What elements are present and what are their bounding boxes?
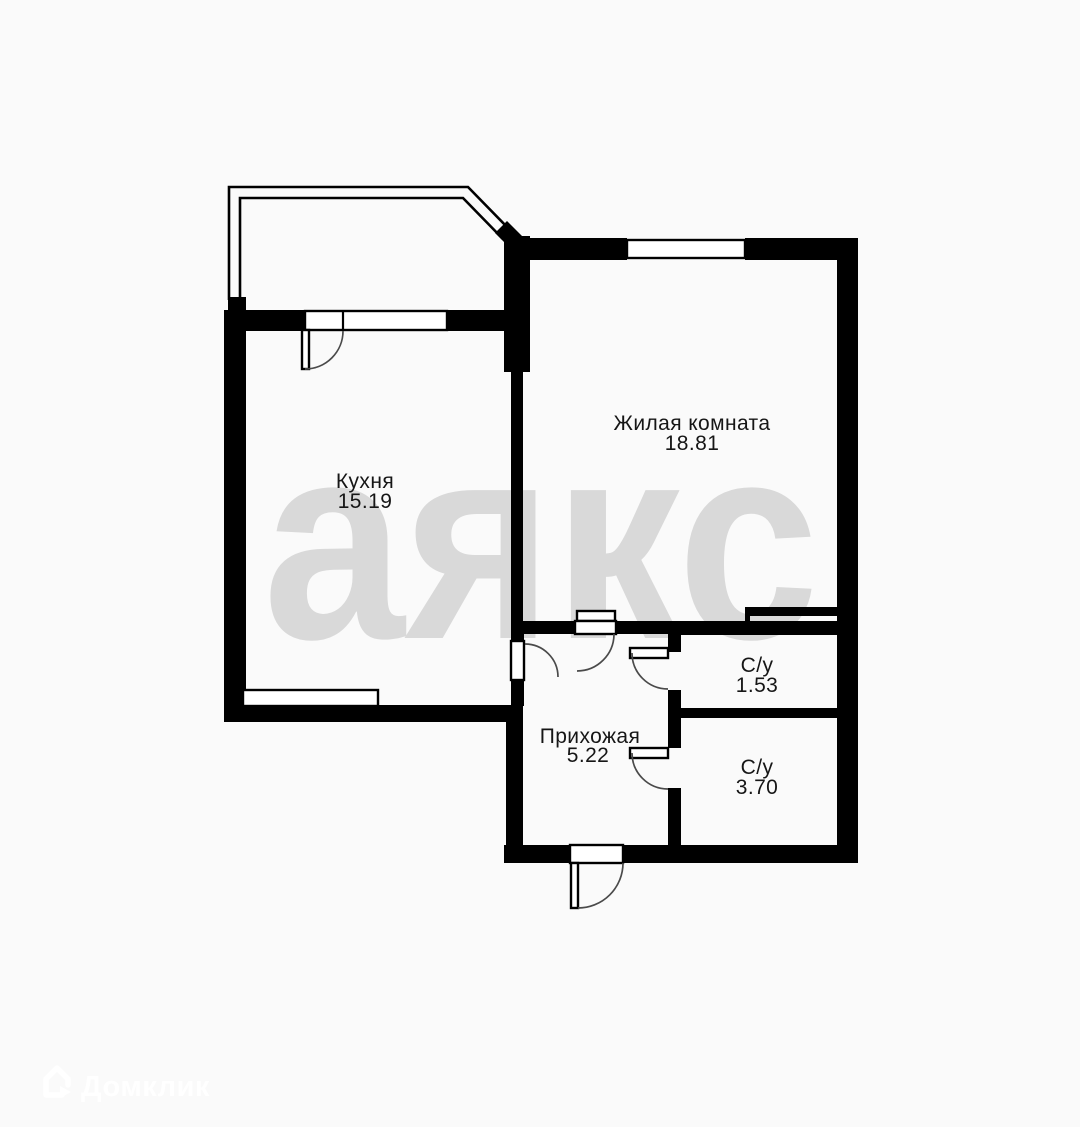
wall-hall-left (506, 706, 523, 845)
room-area-bathroom1: 1.53 (736, 674, 778, 697)
wall-bottom-left (504, 845, 570, 863)
room-area-livingroom: 18.81 (665, 432, 720, 455)
wall-kitchen-top-right (447, 310, 508, 331)
entry-door-gap (570, 845, 623, 863)
wall-hall-top-right (616, 621, 668, 634)
kitchen-counter-ledge (243, 690, 378, 706)
wall-bathroom-left-b (668, 690, 681, 748)
wall-bottom-right (623, 845, 858, 863)
kitchen-window-balcony-door (305, 311, 447, 330)
balcony-door-leaf (302, 330, 309, 369)
livingroom-window (627, 240, 745, 258)
livingroom-door-niche (577, 611, 615, 621)
wall-vent-bar (745, 607, 858, 616)
wall-vent-cap (745, 616, 750, 622)
livingroom-door-gap (575, 621, 616, 634)
wall-livingroom-top-left (508, 238, 627, 260)
wall-kitchen-bottom (224, 705, 523, 722)
room-area-hallway: 5.22 (567, 744, 609, 767)
room-area-bathroom2: 3.70 (736, 776, 778, 799)
wall-mid-thin (511, 372, 523, 622)
wall-hall-top-left (511, 621, 575, 634)
wall-kitchen-left (224, 310, 246, 722)
room-area-kitchen: 15.19 (338, 490, 393, 513)
floor-plan-page: аякс (0, 0, 1080, 1127)
bathroom1-door-leaf (630, 648, 668, 658)
floor-plan: аякс (0, 0, 1080, 1127)
wall-bathroom-divider (668, 708, 845, 718)
wall-balcony-stub (228, 297, 246, 311)
entry-door-leaf (571, 863, 578, 908)
domclick-logo-text: Домклик (81, 1071, 210, 1103)
wall-kitchen-door-stub-bottom (511, 680, 524, 706)
bathroom2-door-leaf (630, 748, 668, 758)
wall-bathroom-top (668, 621, 858, 635)
wall-bathroom-left-c (668, 788, 681, 845)
kitchen-door-leaf (511, 641, 524, 680)
wall-right-outer (837, 238, 858, 863)
wall-bathroom-left-a (668, 635, 681, 652)
